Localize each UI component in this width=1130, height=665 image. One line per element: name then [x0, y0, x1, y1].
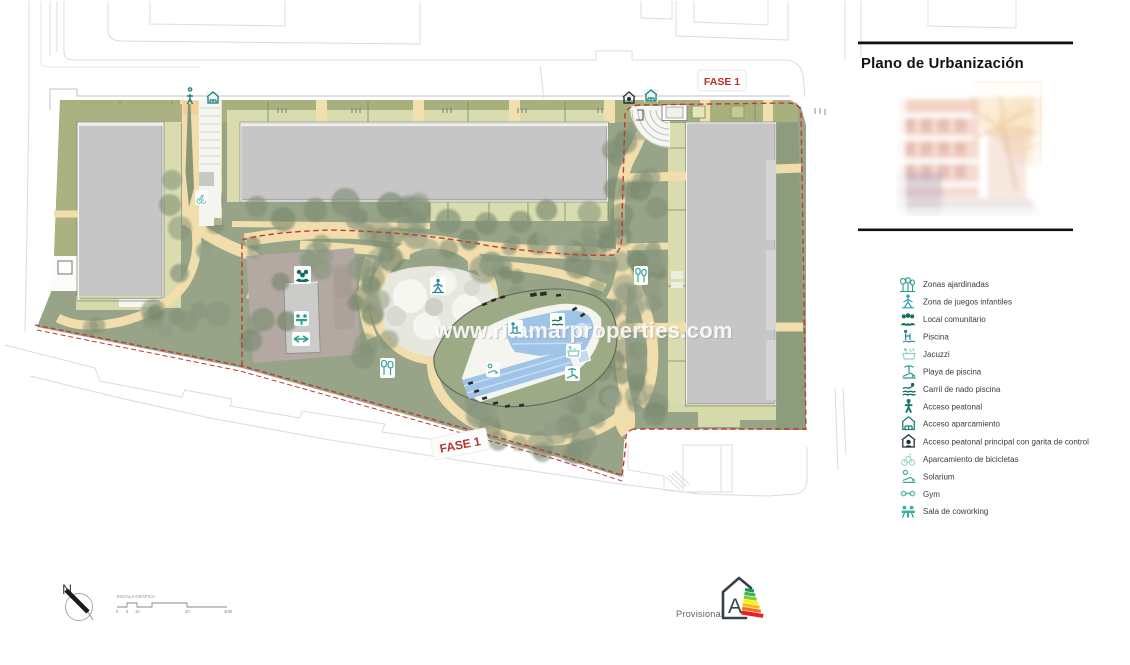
svg-text:A: A — [728, 595, 742, 618]
svg-text:ESCALA GRÁFICA: ESCALA GRÁFICA — [117, 594, 155, 599]
svg-text:Provisional: Provisional — [676, 609, 723, 619]
svg-text:5: 5 — [126, 609, 129, 614]
svg-text:Aparcamiento de bicicletas: Aparcamiento de bicicletas — [923, 455, 1019, 464]
svg-text:10: 10 — [135, 609, 140, 614]
svg-text:www.ritamarproperties.com: www.ritamarproperties.com — [434, 318, 733, 343]
svg-text:Carril de nado piscina: Carril de nado piscina — [923, 385, 1001, 394]
svg-text:Zona de juegos infantiles: Zona de juegos infantiles — [923, 298, 1012, 307]
svg-text:Playa de piscina: Playa de piscina — [923, 368, 982, 377]
svg-text:30M: 30M — [224, 609, 233, 614]
svg-text:Solarium: Solarium — [923, 473, 955, 482]
svg-text:Acceso peatonal: Acceso peatonal — [923, 403, 982, 412]
svg-text:Acceso aparcamiento: Acceso aparcamiento — [923, 420, 1000, 429]
svg-text:Local comunitario: Local comunitario — [923, 315, 986, 324]
svg-text:Zonas ajardinadas: Zonas ajardinadas — [923, 280, 989, 289]
svg-text:20: 20 — [185, 609, 190, 614]
svg-text:0: 0 — [116, 609, 119, 614]
svg-text:Gym: Gym — [923, 490, 940, 499]
svg-text:Plano de Urbanización: Plano de Urbanización — [861, 56, 1024, 72]
svg-text:FASE 1: FASE 1 — [704, 76, 740, 88]
svg-text:Sala de coworking: Sala de coworking — [923, 507, 988, 516]
svg-text:Jacuzzi: Jacuzzi — [923, 350, 950, 359]
svg-text:Acceso peatonal principal con: Acceso peatonal principal con garita de … — [923, 438, 1089, 447]
svg-text:Piscina: Piscina — [923, 333, 949, 342]
